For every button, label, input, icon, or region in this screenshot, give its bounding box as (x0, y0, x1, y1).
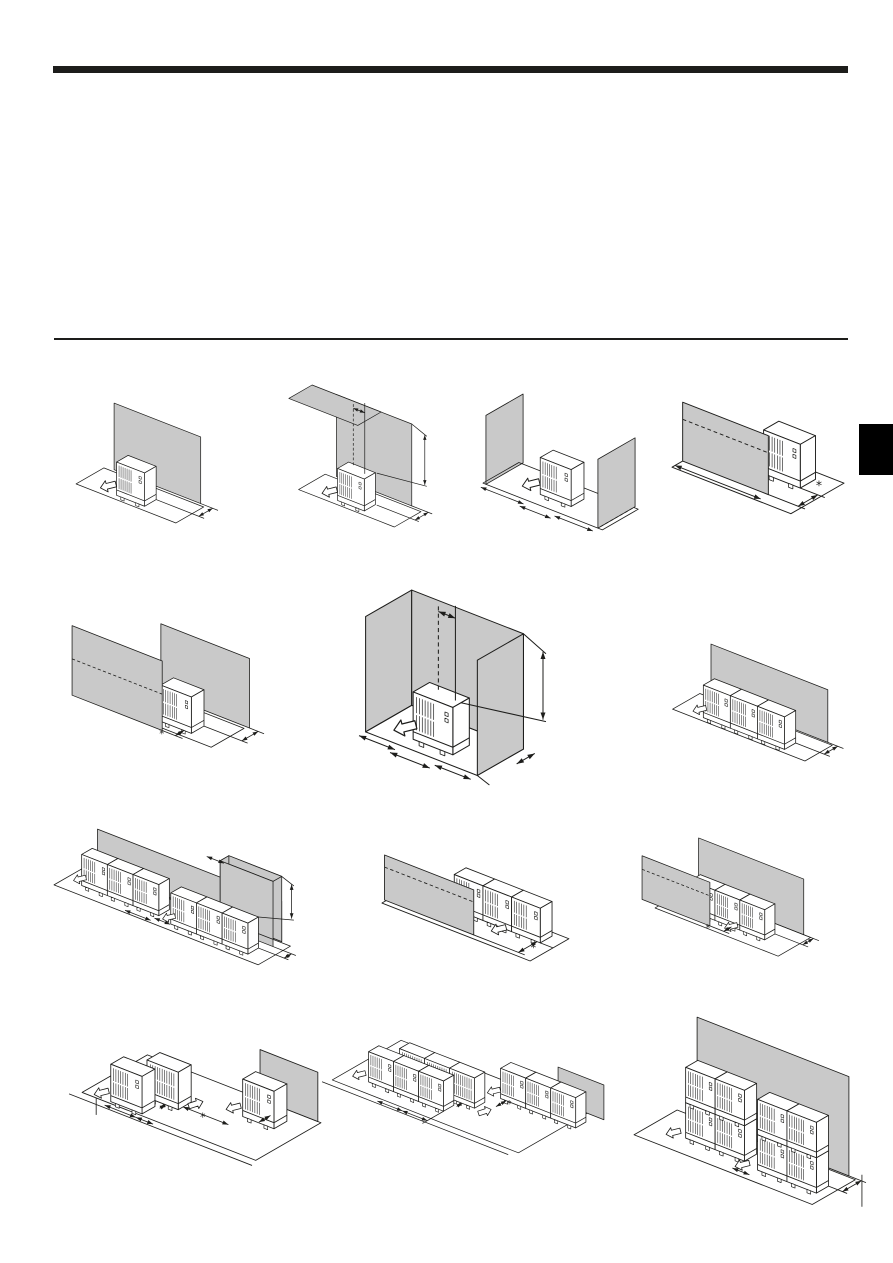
airflow-arrow-icon (351, 1068, 366, 1081)
diagram-svg (630, 1002, 870, 1222)
diagram-units-facing-each-other-rows: * (318, 990, 608, 1205)
diagram-single-unit-wall-behind (72, 393, 222, 533)
diagram-svg (472, 390, 647, 535)
airflow-arrow-icon (665, 1126, 682, 1140)
airflow-arrow-icon (321, 484, 339, 498)
diagram-svg (283, 381, 438, 531)
diagram-single-unit-wall-behind-obstacle-above (283, 381, 438, 531)
svg-text:*: * (706, 923, 711, 934)
svg-text:*: * (159, 729, 164, 741)
svg-text:*: * (507, 1099, 512, 1110)
diagram-svg: * (378, 838, 573, 978)
outdoor-unit (512, 890, 552, 944)
side-tab (859, 424, 893, 475)
diagram-multi-unit-rows-wall-behind-tall-obstacle (50, 812, 300, 982)
diagram-single-unit-wall-front: * (668, 388, 848, 528)
diagram-svg (72, 393, 222, 533)
diagram-svg (355, 585, 550, 790)
diagram-svg (668, 640, 848, 765)
svg-text:*: * (530, 942, 536, 955)
manual-page: * * * * * * (0, 0, 893, 1263)
diagram-multi-unit-row-walls-front-and-back: * (638, 812, 823, 982)
outdoor-unit (764, 421, 816, 489)
airflow-arrow-icon (477, 1105, 493, 1118)
diagram-stacked-units-wall-behind (630, 1002, 870, 1222)
svg-text:*: * (816, 478, 822, 492)
diagram-single-unit-three-sided-enclosure (355, 585, 550, 790)
diagram-svg: * (638, 812, 823, 982)
diagram-multi-unit-row-wall-front: * (378, 838, 573, 978)
outdoor-unit (540, 450, 584, 507)
diagram-single-unit-walls-both-sides (472, 390, 647, 535)
airflow-arrow-icon (225, 1100, 242, 1114)
diagram-svg (50, 812, 300, 982)
diagram-svg: * (65, 1015, 325, 1200)
airflow-arrow-icon (99, 478, 117, 493)
outdoor-unit-back (450, 1062, 485, 1109)
diagram-svg: * (668, 388, 848, 528)
section-rule (54, 338, 848, 340)
diagram-svg: * (68, 593, 268, 778)
diagram-units-facing-each-other-single: * (65, 1015, 325, 1200)
airflow-arrow-icon (486, 1085, 501, 1098)
diagram-single-unit-walls-front-and-back: * (68, 593, 268, 778)
header-rule (53, 66, 848, 73)
diagram-multi-unit-row-wall-behind (668, 640, 848, 765)
diagram-svg: * (318, 990, 608, 1205)
airflow-arrow-icon (521, 476, 541, 493)
svg-text:*: * (200, 1111, 206, 1124)
